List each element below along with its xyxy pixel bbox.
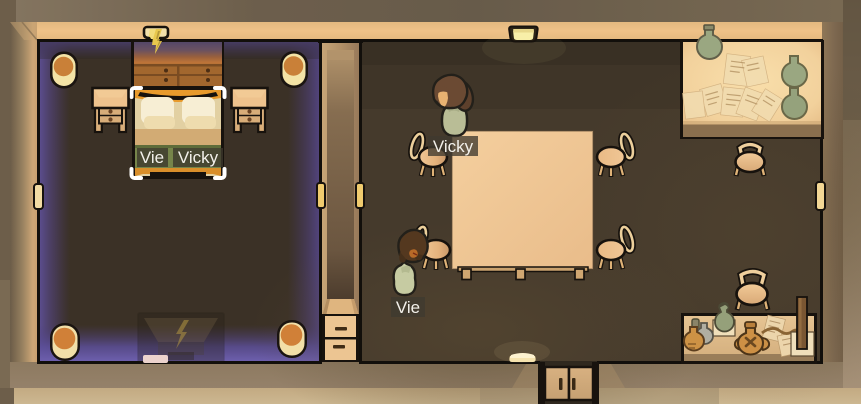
svg-text:Vie: Vie [140,148,164,167]
svg-text:Vicky: Vicky [178,148,219,167]
svg-text:Vie: Vie [396,298,420,317]
svg-text:Vicky: Vicky [433,137,474,156]
